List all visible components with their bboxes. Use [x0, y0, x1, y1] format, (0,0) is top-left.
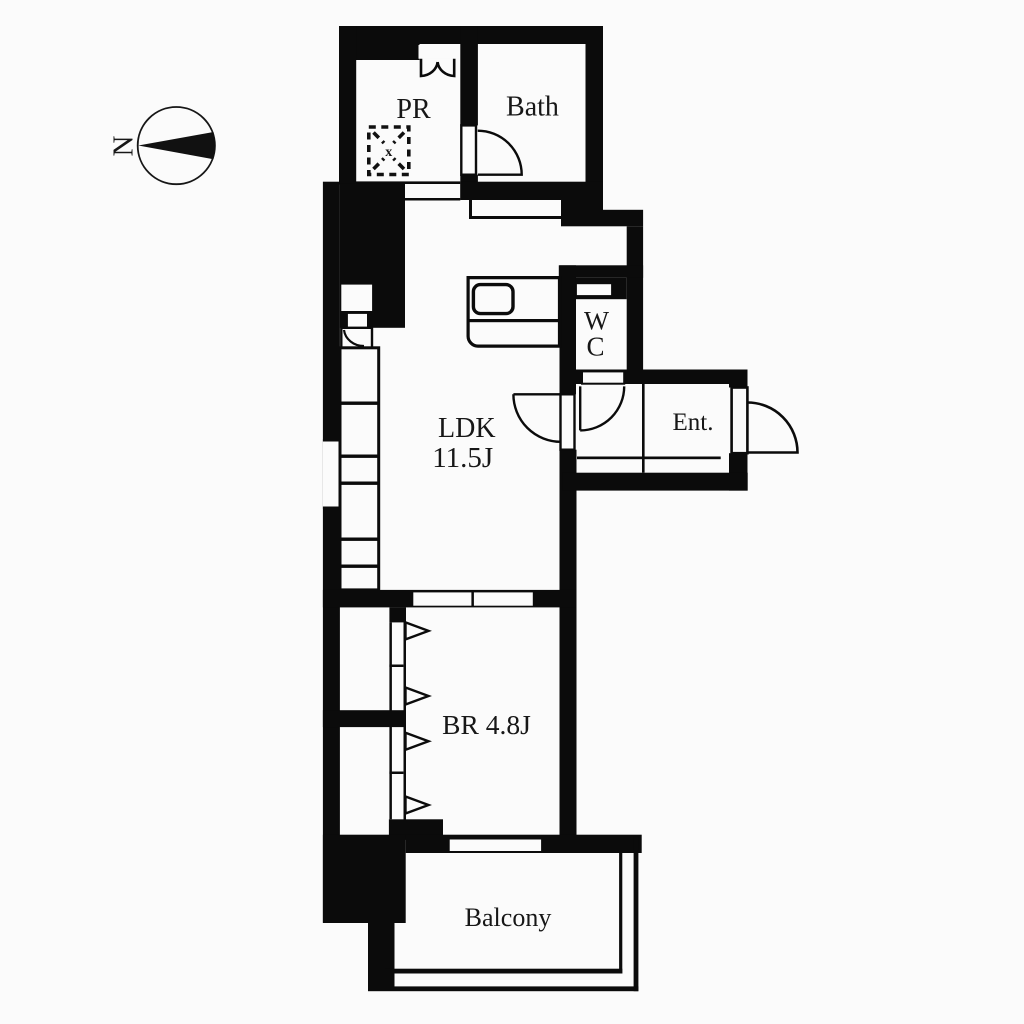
svg-text:Ent.: Ent. [673, 409, 714, 436]
svg-text:LDK: LDK [438, 413, 496, 444]
svg-text:PR: PR [396, 94, 431, 125]
svg-text:BR 4.8J: BR 4.8J [442, 709, 531, 740]
svg-text:x: x [385, 145, 392, 160]
svg-text:Balcony: Balcony [465, 903, 552, 932]
svg-text:Bath: Bath [506, 92, 559, 123]
svg-text:11.5J: 11.5J [432, 442, 493, 474]
svg-text:C: C [586, 332, 604, 362]
svg-text:N: N [108, 135, 140, 156]
